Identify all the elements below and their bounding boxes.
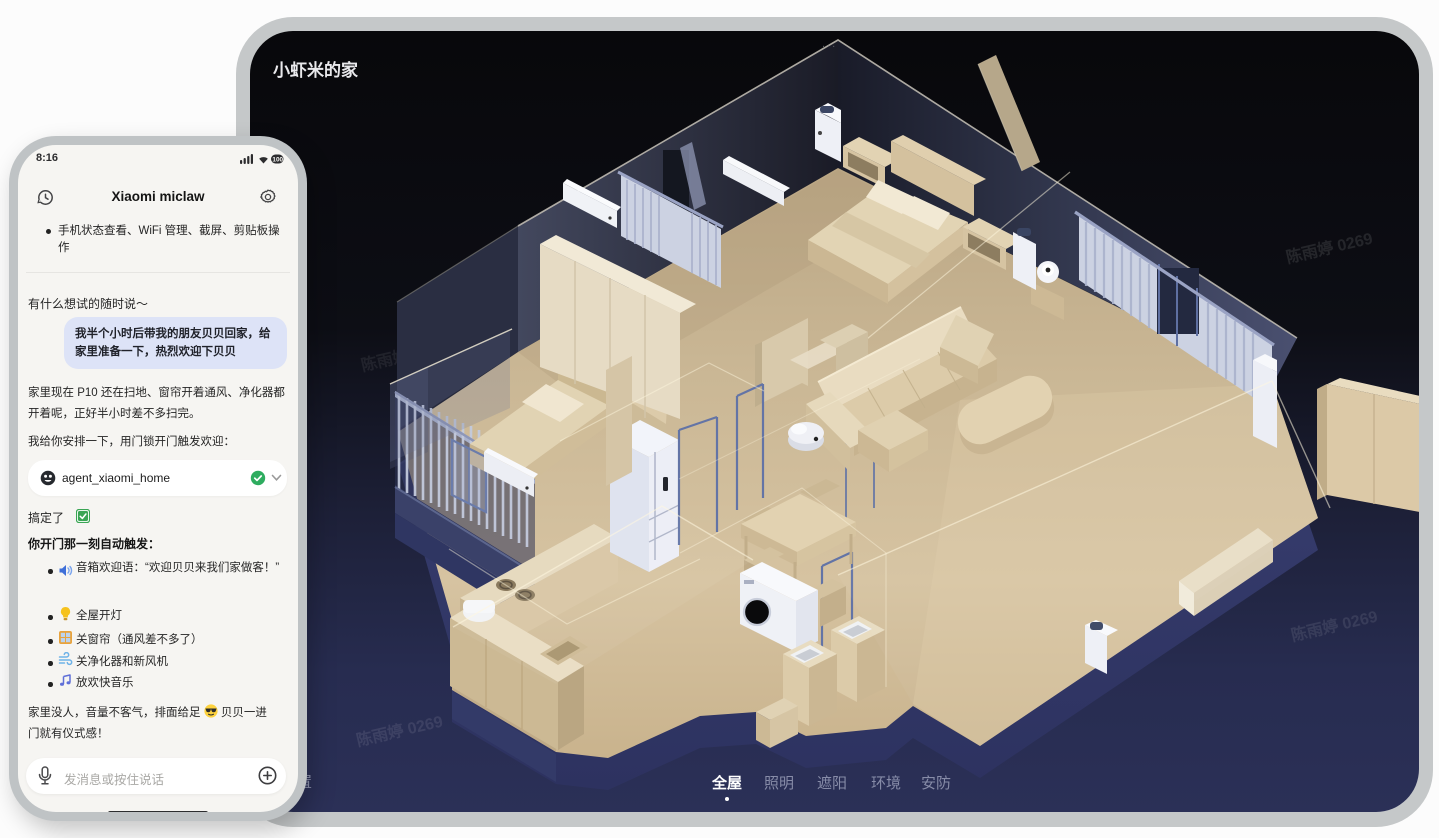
svg-text:小虾米的家: 小虾米的家 <box>273 60 358 80</box>
svg-text:安防: 安防 <box>921 775 951 792</box>
svg-text:全屋: 全屋 <box>711 774 742 792</box>
svg-text:照明: 照明 <box>764 775 794 792</box>
svg-text:100: 100 <box>272 157 283 164</box>
svg-text:环境: 环境 <box>871 774 901 792</box>
svg-text:...: ... <box>822 38 837 50</box>
svg-text:遮阳: 遮阳 <box>817 775 847 792</box>
